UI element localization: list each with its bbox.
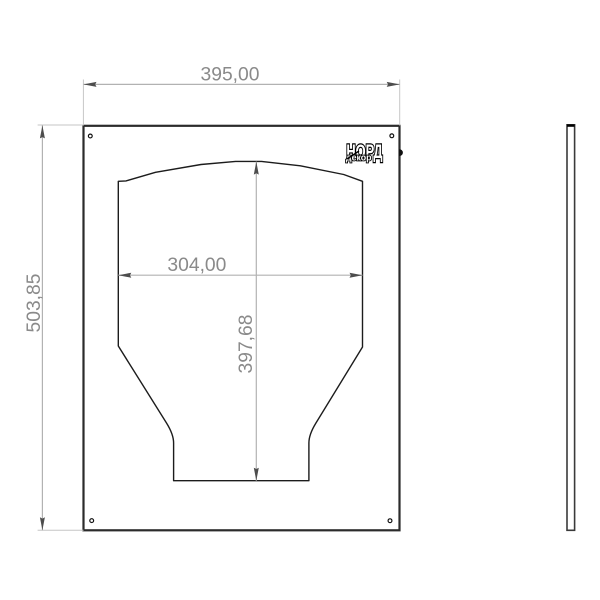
svg-text:503,85: 503,85 <box>24 274 45 333</box>
svg-text:397,68: 397,68 <box>236 315 257 374</box>
svg-text:395,00: 395,00 <box>201 65 260 86</box>
svg-text:304,00: 304,00 <box>167 255 226 276</box>
